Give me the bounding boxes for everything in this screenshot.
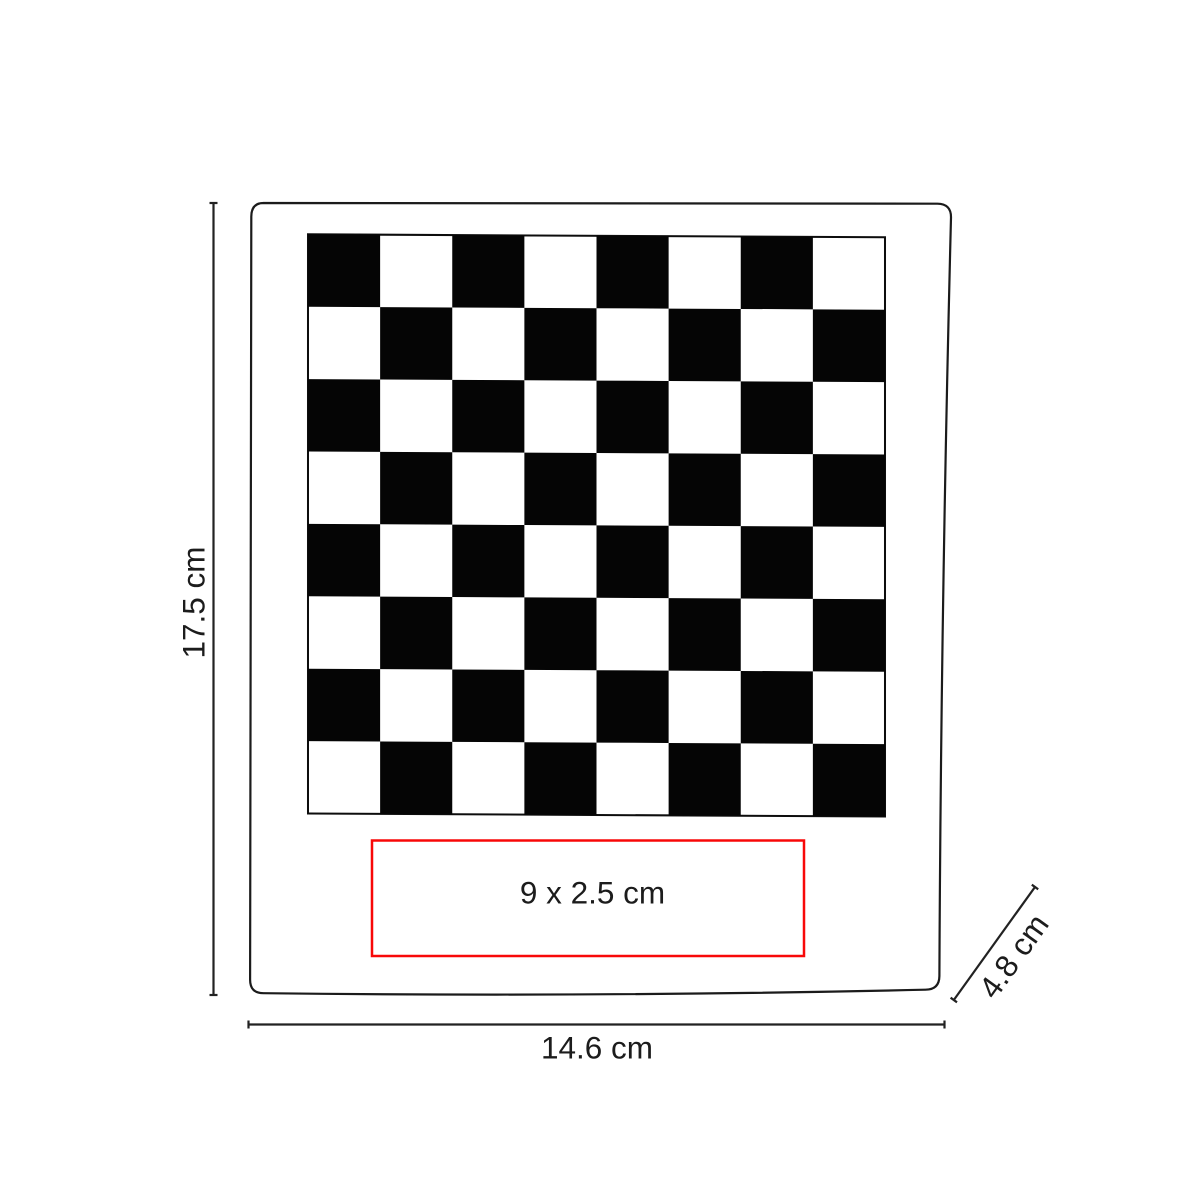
svg-text:17.5 cm: 17.5 cm	[176, 546, 212, 658]
svg-text:14.6 cm: 14.6 cm	[541, 1030, 653, 1066]
svg-text:9 x 2.5 cm: 9 x 2.5 cm	[520, 875, 665, 911]
